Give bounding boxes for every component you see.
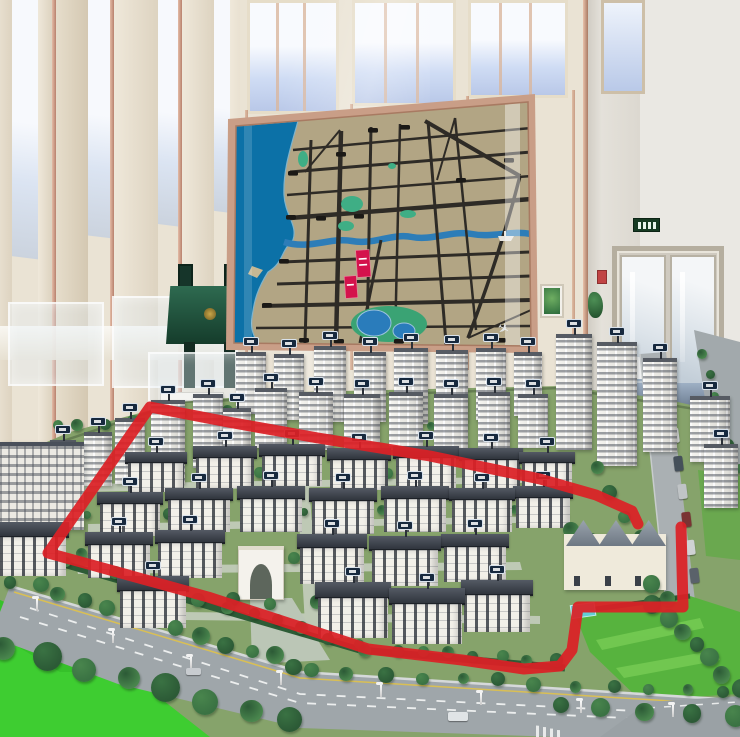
street-lamp	[280, 672, 282, 685]
lowrise-building	[464, 580, 530, 632]
lowrise-building	[330, 448, 388, 490]
sales-gallery-photo: ✈	[0, 0, 740, 737]
tree	[192, 627, 210, 645]
lowrise-building	[462, 448, 520, 490]
tree	[246, 645, 259, 658]
street-lamp	[580, 700, 582, 713]
tree	[458, 673, 469, 684]
lowrise-building	[240, 486, 302, 532]
tree	[602, 485, 617, 500]
tree	[491, 672, 505, 686]
tree	[521, 655, 531, 665]
tree	[526, 677, 541, 692]
tree	[266, 646, 284, 664]
tree	[660, 609, 679, 628]
tree	[416, 673, 429, 686]
tree	[591, 698, 610, 717]
lowrise-building	[318, 582, 388, 638]
car	[186, 668, 201, 675]
tower-building	[597, 342, 637, 466]
tree	[285, 659, 302, 676]
tree	[700, 648, 718, 666]
lowrise-building	[128, 452, 184, 492]
tree	[553, 697, 569, 713]
tree	[33, 642, 62, 671]
tree	[76, 548, 87, 559]
tree	[217, 637, 234, 654]
tree	[118, 667, 140, 689]
tree	[295, 621, 309, 635]
tree	[618, 511, 630, 523]
parked-car	[673, 456, 684, 472]
parked-car	[689, 568, 700, 584]
parked-car	[681, 512, 692, 528]
parked-car	[677, 484, 688, 500]
crosswalk	[536, 725, 560, 737]
tree	[643, 684, 654, 695]
tower-building	[255, 388, 287, 448]
tower-building	[556, 334, 592, 450]
tree	[717, 686, 729, 698]
tree	[78, 593, 93, 608]
tree	[72, 658, 96, 682]
tree	[608, 680, 621, 693]
tree	[392, 645, 404, 657]
tree	[497, 650, 509, 662]
street-lamp	[480, 692, 482, 705]
tree	[71, 419, 83, 431]
tree	[550, 653, 564, 667]
tree	[339, 667, 353, 681]
tree	[467, 651, 478, 662]
tree	[732, 679, 740, 697]
tower-building	[704, 444, 738, 508]
tree	[358, 644, 371, 657]
tree	[635, 703, 654, 722]
tree	[570, 681, 582, 693]
lowrise-building	[168, 488, 230, 532]
tree	[683, 704, 702, 723]
lowrise-building	[158, 530, 222, 578]
tower-building	[84, 432, 112, 486]
street-lamp	[672, 704, 674, 717]
architectural-scale-model	[0, 0, 740, 737]
tree	[168, 620, 183, 635]
slab-building	[0, 442, 84, 530]
tree	[272, 614, 283, 625]
street-lamp	[112, 630, 114, 643]
lowrise-building	[100, 492, 160, 536]
lowrise-building	[384, 486, 446, 532]
tower-building	[643, 358, 677, 452]
tree	[50, 587, 64, 601]
tree	[643, 575, 660, 592]
tree	[442, 646, 454, 658]
tower-building	[389, 392, 423, 450]
tree	[221, 602, 233, 614]
tree	[288, 552, 300, 564]
tree	[0, 637, 15, 661]
pool	[570, 602, 596, 618]
lowrise-building	[312, 488, 374, 534]
tree	[697, 349, 707, 359]
tree	[4, 576, 16, 588]
tree	[683, 684, 694, 695]
tree	[249, 608, 260, 619]
tree	[418, 646, 429, 657]
tree	[277, 707, 302, 732]
tree	[674, 624, 691, 641]
tree	[33, 577, 48, 592]
lowrise-building	[516, 486, 570, 528]
street-lamp	[380, 684, 382, 697]
tree	[706, 370, 715, 379]
tree	[192, 689, 218, 715]
tree	[99, 600, 115, 616]
arch-building	[238, 546, 284, 600]
tree	[713, 666, 730, 683]
low-building	[0, 522, 66, 576]
tree	[378, 667, 394, 683]
tree	[191, 593, 205, 607]
lowrise-building	[396, 446, 456, 490]
street-lamp	[36, 598, 38, 611]
tree	[591, 461, 604, 474]
tree	[264, 598, 275, 609]
car	[448, 712, 468, 721]
tree	[151, 673, 180, 702]
tree	[660, 591, 675, 606]
lowrise-building	[392, 588, 462, 644]
tower-building	[299, 392, 333, 450]
tree	[322, 633, 334, 645]
parked-car	[685, 540, 696, 556]
tree	[304, 663, 319, 678]
tree	[725, 705, 740, 726]
tree	[240, 700, 263, 723]
tree	[643, 595, 662, 614]
tower-building	[434, 394, 468, 450]
